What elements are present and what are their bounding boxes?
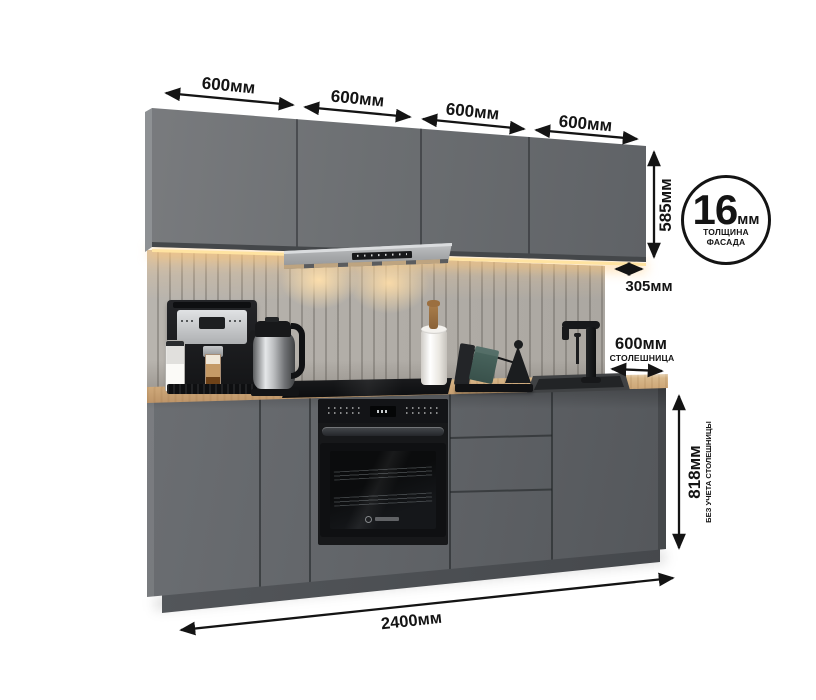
kettle-lid (255, 321, 291, 337)
kettle-handle (291, 323, 305, 379)
paper-towel-roll (421, 329, 447, 385)
oven-rack (334, 466, 432, 480)
kettle-base (251, 389, 299, 396)
dim-label-width-1: 600мм (201, 74, 256, 98)
badge-caption-1: ТОЛЩИНА (703, 227, 749, 237)
faucet-body (586, 327, 596, 381)
dimension-arrow-width-4 (536, 130, 637, 139)
badge-caption-2: ФАСАДА (707, 237, 746, 247)
oven-buttons (328, 412, 360, 414)
base-left-edge (147, 387, 154, 599)
dim-caption-base-height: БЕЗ УЧЕТА СТОЛЕШНИЦЫ (704, 421, 713, 523)
dim-caption-counter-depth: СТОЛЕШНИЦА (610, 353, 675, 363)
kitchen-product-render: 600мм 600мм 600мм 600мм 585мм 305мм 600м… (0, 0, 816, 700)
dim-label-width-2: 600мм (330, 87, 385, 111)
oven-buttons (406, 412, 438, 414)
base-right-edge (658, 387, 667, 599)
range-hood (280, 240, 456, 274)
oven-display (370, 406, 396, 417)
funnel (505, 346, 531, 383)
dim-label-width-4: 600мм (558, 112, 613, 136)
wooden-utensil-knob (427, 300, 440, 307)
kettle (251, 315, 307, 398)
coffee-machine-vent (173, 302, 251, 308)
dimension-arrow-width-3 (423, 119, 524, 129)
oven-buttons (406, 407, 438, 409)
faucet-base (581, 377, 601, 383)
funnel-knob (514, 340, 523, 349)
base-door-gap (309, 387, 311, 599)
coffee-machine-panel (177, 310, 247, 344)
faucet-lever-knob (574, 333, 581, 337)
oven-brand-logo (365, 515, 403, 523)
base-door-gap (259, 387, 261, 599)
oven-buttons (328, 407, 360, 409)
coffee-machine-display (199, 317, 225, 329)
badge-value-row: 16мм (693, 193, 760, 227)
oven-rack (334, 492, 432, 506)
dim-label-width-3: 600мм (445, 99, 500, 123)
dim-label-total-width: 2400мм (380, 609, 443, 633)
coffee-machine-buttons (229, 320, 243, 322)
rack-base (455, 384, 533, 392)
oven-handle (322, 427, 444, 436)
dim-label-counter-depth: 600мм (615, 335, 667, 353)
coffee-machine-buttons (181, 320, 195, 322)
dim-label-base-height: 818мм (685, 445, 704, 499)
badge-value: 16 (693, 186, 738, 233)
badge-unit: мм (737, 211, 759, 228)
drawer-gap (450, 489, 552, 493)
dish-rack (455, 338, 535, 392)
facade-thickness-badge: 16мм ТОЛЩИНА ФАСАДА (681, 175, 771, 265)
dimension-arrow-width-2 (305, 107, 410, 117)
kettle-body (253, 333, 295, 389)
dim-label-upper-depth: 305мм (625, 278, 672, 295)
dimension-arrow-counter-depth (612, 369, 662, 371)
faucet-lever (576, 336, 579, 364)
drawer-gap (450, 435, 552, 439)
faucet-nozzle (562, 327, 569, 340)
kettle-knob (265, 317, 279, 322)
wooden-utensil (429, 305, 438, 329)
wall-door-gap (528, 105, 530, 265)
dim-label-upper-height: 585мм (656, 178, 675, 232)
oven (318, 399, 448, 545)
oven-control-panel (318, 399, 448, 423)
dimension-arrow-width-1 (166, 93, 293, 105)
